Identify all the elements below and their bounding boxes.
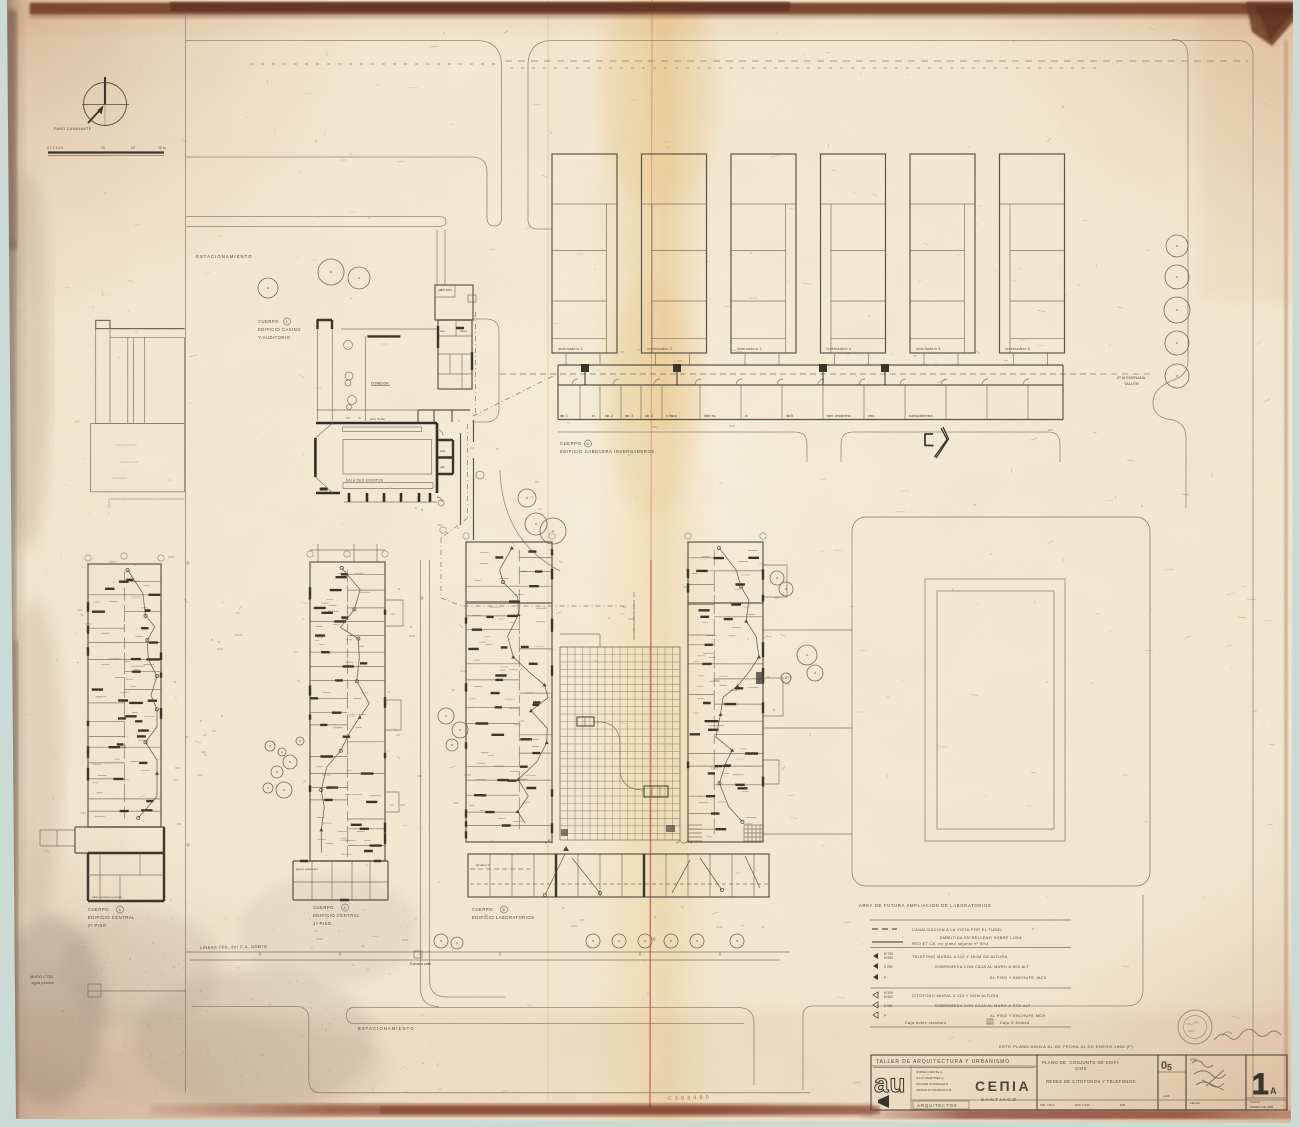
svg-text:15: 15 xyxy=(131,146,135,150)
svg-text:suelos/alimentos: suelos/alimentos xyxy=(909,414,933,418)
svg-text:CIOS: CIOS xyxy=(1075,1066,1087,1071)
svg-text:20 m.: 20 m. xyxy=(158,146,167,150)
svg-text:2º M ENTRADA: 2º M ENTRADA xyxy=(1117,375,1146,380)
svg-text:CUERPO: CUERPO xyxy=(472,907,493,912)
svg-text:0 1 2 3 4 5: 0 1 2 3 4 5 xyxy=(47,146,63,150)
svg-text:AREA DE FUTURA AMPLIACION: AREA DE FUTURA AMPLIACION DE LABORATORIO… xyxy=(859,903,991,908)
svg-text:CUERPO: CUERPO xyxy=(313,905,334,910)
svg-text:SANTIAGO: SANTIAGO xyxy=(981,1097,1018,1102)
svg-text:ESTACIONAMIENTO: ESTACIONAMIENTO xyxy=(196,254,253,259)
svg-text:desp.: desp. xyxy=(460,329,468,333)
svg-text:ESTE PLANO ANULA AL DE FEC: ESTE PLANO ANULA AL DE FECHA 31 DE ENERO… xyxy=(999,1044,1133,1049)
svg-text:EDIFICIO LABORATORIOS: EDIFICIO LABORATORIOS xyxy=(472,915,534,920)
svg-text:S 000: S 000 xyxy=(884,1004,893,1008)
svg-text:EDIFICIO CABECERA INVERNADER: EDIFICIO CABECERA INVERNADEROS xyxy=(560,449,655,454)
svg-text:2º PISO: 2º PISO xyxy=(88,923,107,928)
svg-text:PLANO DE: CONJUNTO DE EDI: PLANO DE: CONJUNTO DE EDIFI- xyxy=(1042,1060,1120,1065)
svg-text:CUERPO: CUERPO xyxy=(258,319,279,324)
svg-text:CITOFONO MURAL A 110 Y: CITOFONO MURAL A 110 Y NOM ALTURA xyxy=(912,994,999,998)
svg-text:ARQUITECTOS: ARQUITECTOS xyxy=(917,1103,957,1108)
svg-text:S 200: S 200 xyxy=(884,965,893,969)
svg-text:sem. crecimiento: sem. crecimiento xyxy=(827,414,851,418)
svg-text:EL PISO Y ENCHUFE JACK: EL PISO Y ENCHUFE JACK xyxy=(990,976,1047,980)
svg-text:A: A xyxy=(1270,1086,1277,1096)
svg-text:CEΠIA: CEΠIA xyxy=(975,1078,1031,1094)
svg-text:CUERPO: CUERPO xyxy=(560,441,582,446)
svg-text:DIB.: DIB. xyxy=(1120,1103,1126,1107)
svg-text:c. fisica: c. fisica xyxy=(666,414,677,418)
svg-text:TALLER: TALLER xyxy=(1124,381,1139,386)
svg-text:lab. 4: lab. 4 xyxy=(645,414,653,418)
svg-text:mec.: mec. xyxy=(868,414,875,418)
svg-text:TELEFONO MURAL A 110 Y: TELEFONO MURAL A 110 Y 150M DE ALTURA xyxy=(912,955,1008,959)
svg-text:au: au xyxy=(874,1068,906,1098)
svg-text:apoyo extension: apoyo extension xyxy=(296,867,318,871)
svg-text:EDIFICIO CASINO: EDIFICIO CASINO xyxy=(258,327,301,332)
svg-text:M 900: M 900 xyxy=(884,995,893,999)
svg-text:05: 05 xyxy=(1161,1060,1173,1073)
svg-text:coc.: coc. xyxy=(440,329,446,333)
svg-text:EDIFICIO CENTRAL: EDIFICIO CENTRAL xyxy=(313,913,360,918)
svg-text:invernadero 2: invernadero 2 xyxy=(648,347,673,351)
svg-text:1º PISO: 1º PISO xyxy=(313,921,332,926)
svg-text:bod: bod xyxy=(440,449,445,453)
svg-text:sala reuniones y actos: sala reuniones y actos xyxy=(92,895,122,899)
svg-text:MURO CTEL: MURO CTEL xyxy=(30,974,54,979)
svg-text:SOBREMESA CON CAJA AL MURO: SOBREMESA CON CAJA AL MURO A 600 ALT xyxy=(935,965,1030,969)
svg-text:REDES DE CITOFONOS Y TELEF: REDES DE CITOFONOS Y TELEFONOS xyxy=(1046,1079,1136,1084)
svg-text:invernadero 6: invernadero 6 xyxy=(1006,347,1031,351)
svg-text:lab. 3: lab. 3 xyxy=(625,414,633,418)
svg-text:WALTER GONZALEZ P.: WALTER GONZALEZ P. xyxy=(916,1082,949,1086)
svg-text:TALLER DE ARQUITECTURA Y U: TALLER DE ARQUITECTURA Y URBANISMO xyxy=(876,1059,1010,1065)
svg-text:lab. 1: lab. 1 xyxy=(560,414,568,418)
svg-text:AL PISO Y ENCHUFE MCH: AL PISO Y ENCHUFE MCH xyxy=(990,1014,1046,1018)
svg-text:RED ET.CA. en plano adjun: RED ET.CA. en plano adjunto nº 5½4 xyxy=(912,942,989,946)
svg-text:Caja S´Embed: Caja S´Embed xyxy=(1000,1021,1030,1025)
svg-text:P: P xyxy=(884,976,886,980)
svg-text:FARO CAMINANTE: FARO CAMINANTE xyxy=(54,127,92,131)
svg-text:EMBUTIDA EN RELLENO SOBRE: EMBUTIDA EN RELLENO SOBRE LOSA xyxy=(940,936,1022,940)
svg-text:CRISANTO MANDIOLA M.: CRISANTO MANDIOLA M. xyxy=(916,1088,952,1092)
svg-text:VºBº: VºBº xyxy=(1190,1058,1198,1062)
svg-text:ARQ.: ARQ. xyxy=(1188,1029,1196,1033)
svg-text:P: P xyxy=(884,1014,886,1018)
svg-text:1: 1 xyxy=(286,320,288,324)
svg-text:MARZO DE 1965: MARZO DE 1965 xyxy=(1250,1105,1274,1109)
svg-text:invernadero 3: invernadero 3 xyxy=(737,347,762,351)
svg-text:ofic: ofic xyxy=(440,465,445,469)
svg-text:LAM.: LAM. xyxy=(1163,1094,1170,1098)
svg-text:JULIO MARTINEZ C.: JULIO MARTINEZ C. xyxy=(916,1076,945,1080)
svg-text:FECHA: FECHA xyxy=(1190,1101,1200,1105)
svg-text:10: 10 xyxy=(101,146,105,150)
svg-text:taller eq: taller eq xyxy=(704,414,716,418)
svg-text:patio serv.: patio serv. xyxy=(438,288,453,292)
svg-text:SALA DES EVENTOS: SALA DES EVENTOS xyxy=(346,479,384,483)
svg-text:ESC 1:200: ESC 1:200 xyxy=(1075,1103,1090,1107)
svg-text:Caja doble standard: Caja doble standard xyxy=(905,1021,947,1025)
svg-text:CUERPO: CUERPO xyxy=(88,907,109,912)
svg-text:Y AUDITORIO: Y AUDITORIO xyxy=(258,335,291,340)
svg-text:·agua percha: ·agua percha xyxy=(30,980,54,985)
svg-text:lab 5: lab 5 xyxy=(786,414,793,418)
svg-text:el: el xyxy=(745,414,748,418)
svg-text:invernadero 5: invernadero 5 xyxy=(916,347,941,351)
svg-text:SOBREMESA CON CAJA AL MURO: SOBREMESA CON CAJA AL MURO A STD ALT xyxy=(935,1004,1031,1008)
svg-text:lab. 2: lab. 2 xyxy=(605,414,613,418)
svg-text:FRL. NS-4: FRL. NS-4 xyxy=(1040,1103,1055,1107)
svg-text:M 900: M 900 xyxy=(884,956,893,960)
svg-text:JORGE FUENTE A.: JORGE FUENTE A. xyxy=(916,1070,943,1074)
svg-text:COMEDOR: COMEDOR xyxy=(371,382,389,386)
svg-text:sem. frente: sem. frente xyxy=(370,417,385,421)
svg-text:1: 1 xyxy=(1252,1068,1269,1101)
svg-text:ad alum ¾: ad alum ¾ xyxy=(476,863,491,867)
svg-text:invernadero 4: invernadero 4 xyxy=(827,347,852,351)
svg-text:el: el xyxy=(592,414,595,418)
svg-text:EDIFICIO CENTRAL: EDIFICIO CENTRAL xyxy=(88,915,135,920)
svg-text:invernadero 1: invernadero 1 xyxy=(558,347,583,351)
svg-text:PLANO: PLANO xyxy=(1250,1100,1261,1104)
svg-text:ESTACIONAMIENTO: ESTACIONAMIENTO xyxy=(358,1026,415,1031)
svg-text:CANALIZACION A LA VISTA: CANALIZACION A LA VISTA POR EL TUNEL xyxy=(912,928,1003,932)
